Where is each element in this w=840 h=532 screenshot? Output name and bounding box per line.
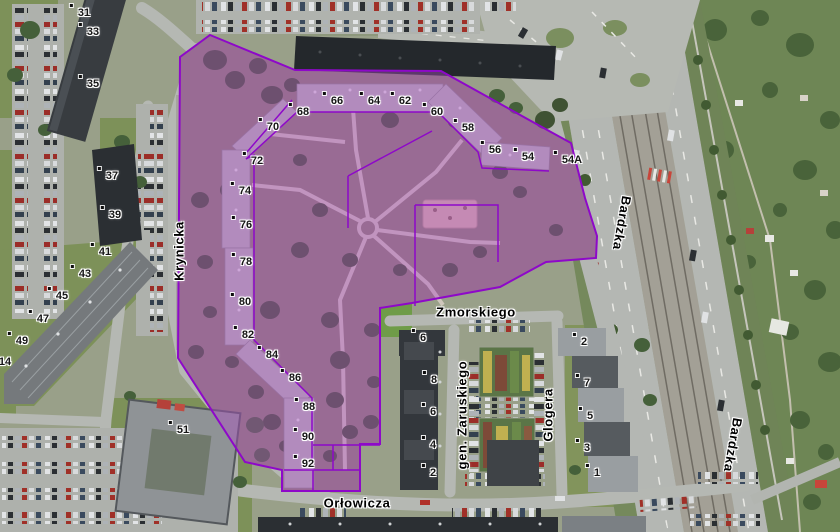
buildings-bottom bbox=[258, 516, 646, 532]
building-orlowicza bbox=[487, 440, 539, 486]
aerial-basemap bbox=[0, 0, 840, 532]
map-viewport[interactable]: 3133353739414345474914516866646260585654… bbox=[0, 0, 840, 532]
building-37-39 bbox=[92, 144, 142, 246]
